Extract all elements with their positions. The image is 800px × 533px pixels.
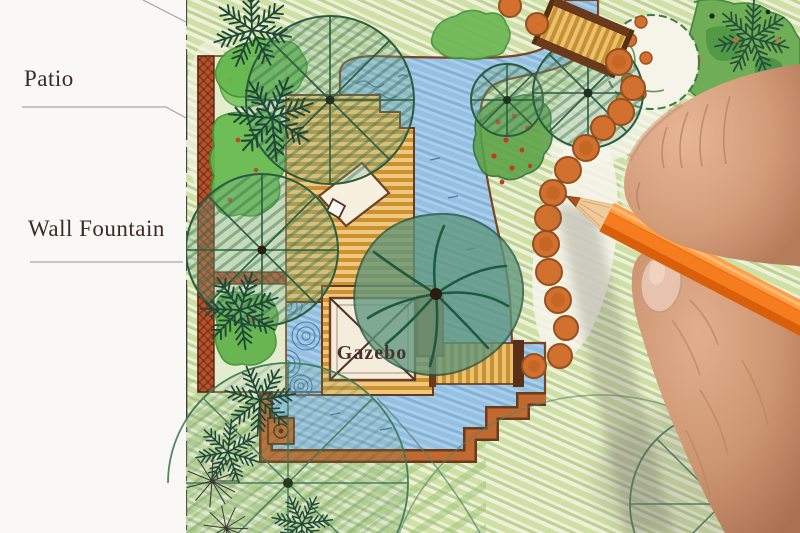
- landscape-plan-svg: Patio Wall Fountain Gazebo: [0, 0, 800, 533]
- paper-margin: Patio Wall Fountain: [0, 0, 186, 533]
- gazebo-label: Gazebo: [337, 342, 407, 364]
- patio-label: Patio: [24, 66, 74, 91]
- wall-fountain-label: Wall Fountain: [28, 216, 165, 241]
- tree-symbol: [471, 64, 543, 136]
- garden-plan-photo: Patio Wall Fountain Gazebo: [0, 0, 800, 533]
